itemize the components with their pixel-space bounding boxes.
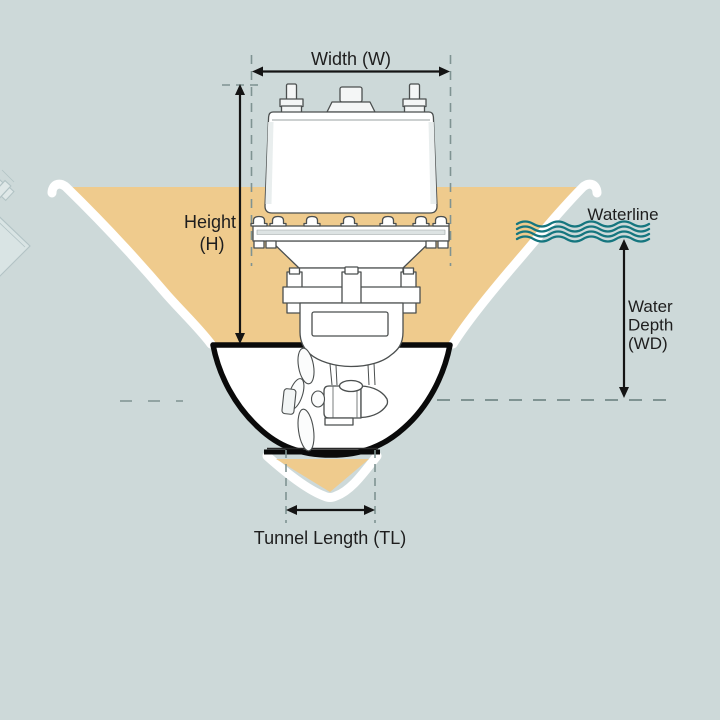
propeller-hub <box>312 391 325 407</box>
nameplate <box>312 312 388 336</box>
flange-bolts <box>251 217 449 227</box>
width-label: Width (W) <box>311 49 391 69</box>
water-depth-label-line3: (WD) <box>628 334 668 353</box>
height-label-line2: (H) <box>200 234 225 254</box>
water-depth-label-line1: Water <box>628 297 673 316</box>
flange-cone <box>271 241 431 268</box>
tunnel-length-label: Tunnel Length (TL) <box>254 528 406 548</box>
bow-thruster-dimension-diagram: Width (W) Height (H) Waterline Water Dep… <box>0 0 720 720</box>
pod-bracket <box>325 418 353 425</box>
water-depth-label-line2: Depth <box>628 316 673 335</box>
height-label-line1: Height <box>184 212 236 232</box>
waterline-label: Waterline <box>587 205 658 224</box>
anode-block <box>282 388 297 414</box>
motor-housing <box>265 112 437 213</box>
